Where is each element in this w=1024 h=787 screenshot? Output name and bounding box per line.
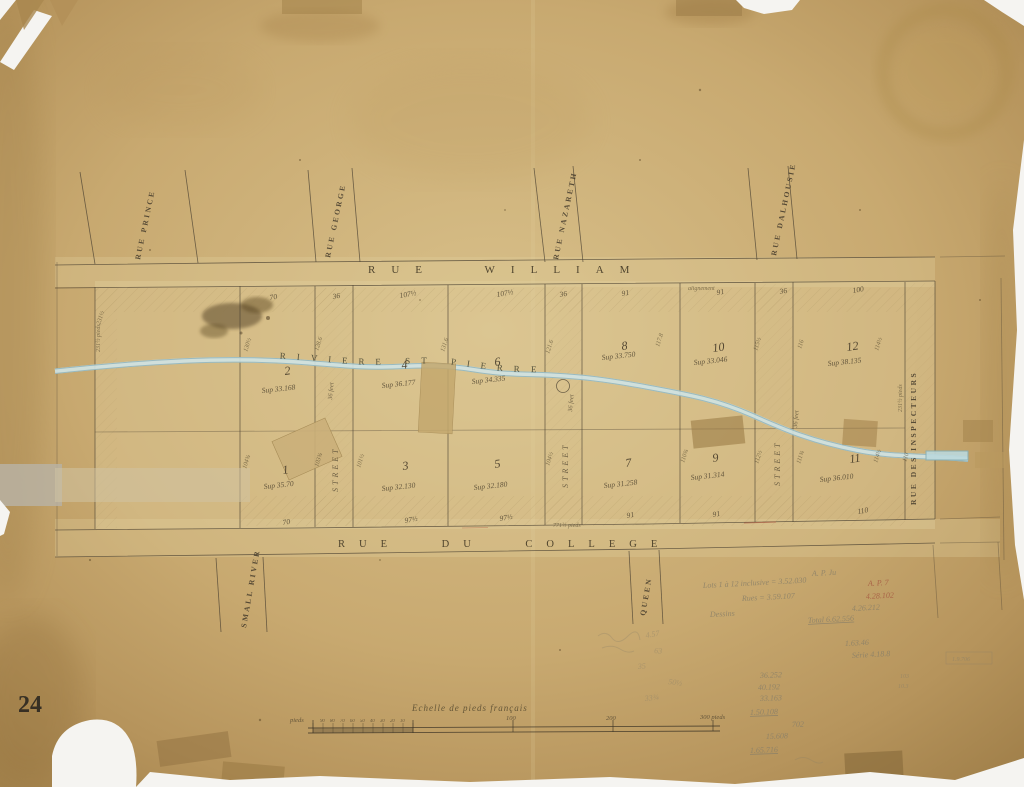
red-check-mark — [462, 528, 488, 529]
scale-tick-100: 100 — [506, 715, 517, 722]
pencil-calculation: 33.163 — [759, 693, 782, 703]
edge-measure-note: 231½ pieds — [897, 384, 904, 412]
street-label-rue-des-inspecteurs: RUE DES INSPECTEURS — [909, 371, 918, 505]
stain-patch — [842, 419, 878, 447]
scale-subdivision-number: 10 — [400, 719, 405, 724]
scale-subdivision-number: 20 — [390, 719, 395, 724]
stain-patch — [691, 415, 746, 448]
canal-segment — [926, 451, 968, 460]
corridor-label-street: STREET — [561, 442, 570, 488]
frontage-measure: 91 — [626, 510, 635, 520]
scale-subdivision-number: 90 — [320, 719, 325, 724]
scale-bar-title: Echelle de pieds français — [411, 703, 528, 713]
scale-subdivision-number: 60 — [350, 719, 355, 724]
lot-number: 11 — [848, 451, 861, 466]
scale-subdivision-number: 30 — [380, 719, 385, 724]
pencil-note: 4.28.102 — [866, 591, 894, 601]
scale-subdivision-number: 70 — [340, 719, 345, 724]
scanned-survey-plan: RUE WILLIAM RUE DU COLLEGE RUE PRINCE RU… — [0, 0, 1024, 787]
scale-subdivision-number: 50 — [360, 719, 365, 724]
corridor-label-street: STREET — [773, 440, 782, 486]
frontage-measure: 91 — [712, 509, 721, 519]
pencil-tiny-note: 10.3 — [898, 684, 909, 690]
tape-patch — [55, 468, 250, 502]
frontage-measure: 91 — [716, 287, 725, 297]
lot-number: 12 — [845, 338, 859, 354]
scale-tick-300: 300 pieds — [699, 714, 726, 721]
pencil-scribble: 33¾ — [643, 693, 659, 704]
pencil-calculation: 1.50.108 — [750, 707, 778, 717]
tape-patch — [418, 362, 456, 434]
lot-number: 10 — [711, 339, 725, 355]
frontage-measure: 110 — [857, 505, 869, 516]
stain-patch — [975, 452, 1005, 468]
sheet-number: 24 — [18, 692, 42, 718]
pencil-calculation: 36.252 — [759, 670, 782, 680]
pencil-scribble: 63 — [654, 646, 663, 656]
stain-patch — [676, 0, 742, 16]
pencil-calculation: 15.608 — [766, 731, 788, 741]
frontage-measure: 91 — [621, 288, 630, 298]
pencil-note: A. P. Ju — [811, 568, 837, 578]
tape-patch — [0, 464, 62, 506]
edge-measure-note: 231½ pieds — [95, 324, 102, 352]
pencil-tiny-note: 1.9.706 — [952, 657, 970, 663]
alignment-note: alignement — [688, 286, 715, 292]
street-label-rue-du-college: RUE DU COLLEGE — [338, 539, 671, 550]
pencil-note: A. P. 7 — [867, 578, 890, 588]
scale-subdivision-number: 40 — [370, 719, 375, 724]
pencil-note: Dessins — [709, 609, 735, 619]
stain-patch — [963, 420, 993, 442]
pencil-scribble: 35 — [637, 661, 647, 671]
map-canvas: RUE WILLIAM RUE DU COLLEGE RUE PRINCE RU… — [0, 0, 1024, 787]
scale-subdivision-number: 80 — [330, 719, 335, 724]
pencil-calculation: 1.65.716 — [750, 745, 778, 755]
scale-tick-200: 200 — [606, 715, 617, 722]
pencil-note: 1.63.46 — [845, 638, 869, 648]
pencil-calculation: 702 — [792, 720, 804, 729]
corridor-label-street: STREET — [331, 446, 340, 492]
pencil-tiny-note: 103 — [900, 674, 909, 680]
street-label-rue-william: RUE WILLIAM — [368, 264, 645, 276]
total-length-note: 771½ pieds — [553, 522, 581, 529]
pencil-calculation: 40.192 — [758, 682, 780, 692]
scale-unit-left: pieds — [289, 717, 304, 724]
scale-subdivision-numbers: 908070605040302010 — [320, 719, 405, 724]
stain-patch — [282, 0, 362, 14]
pencil-note: 4.26.212 — [852, 603, 880, 613]
